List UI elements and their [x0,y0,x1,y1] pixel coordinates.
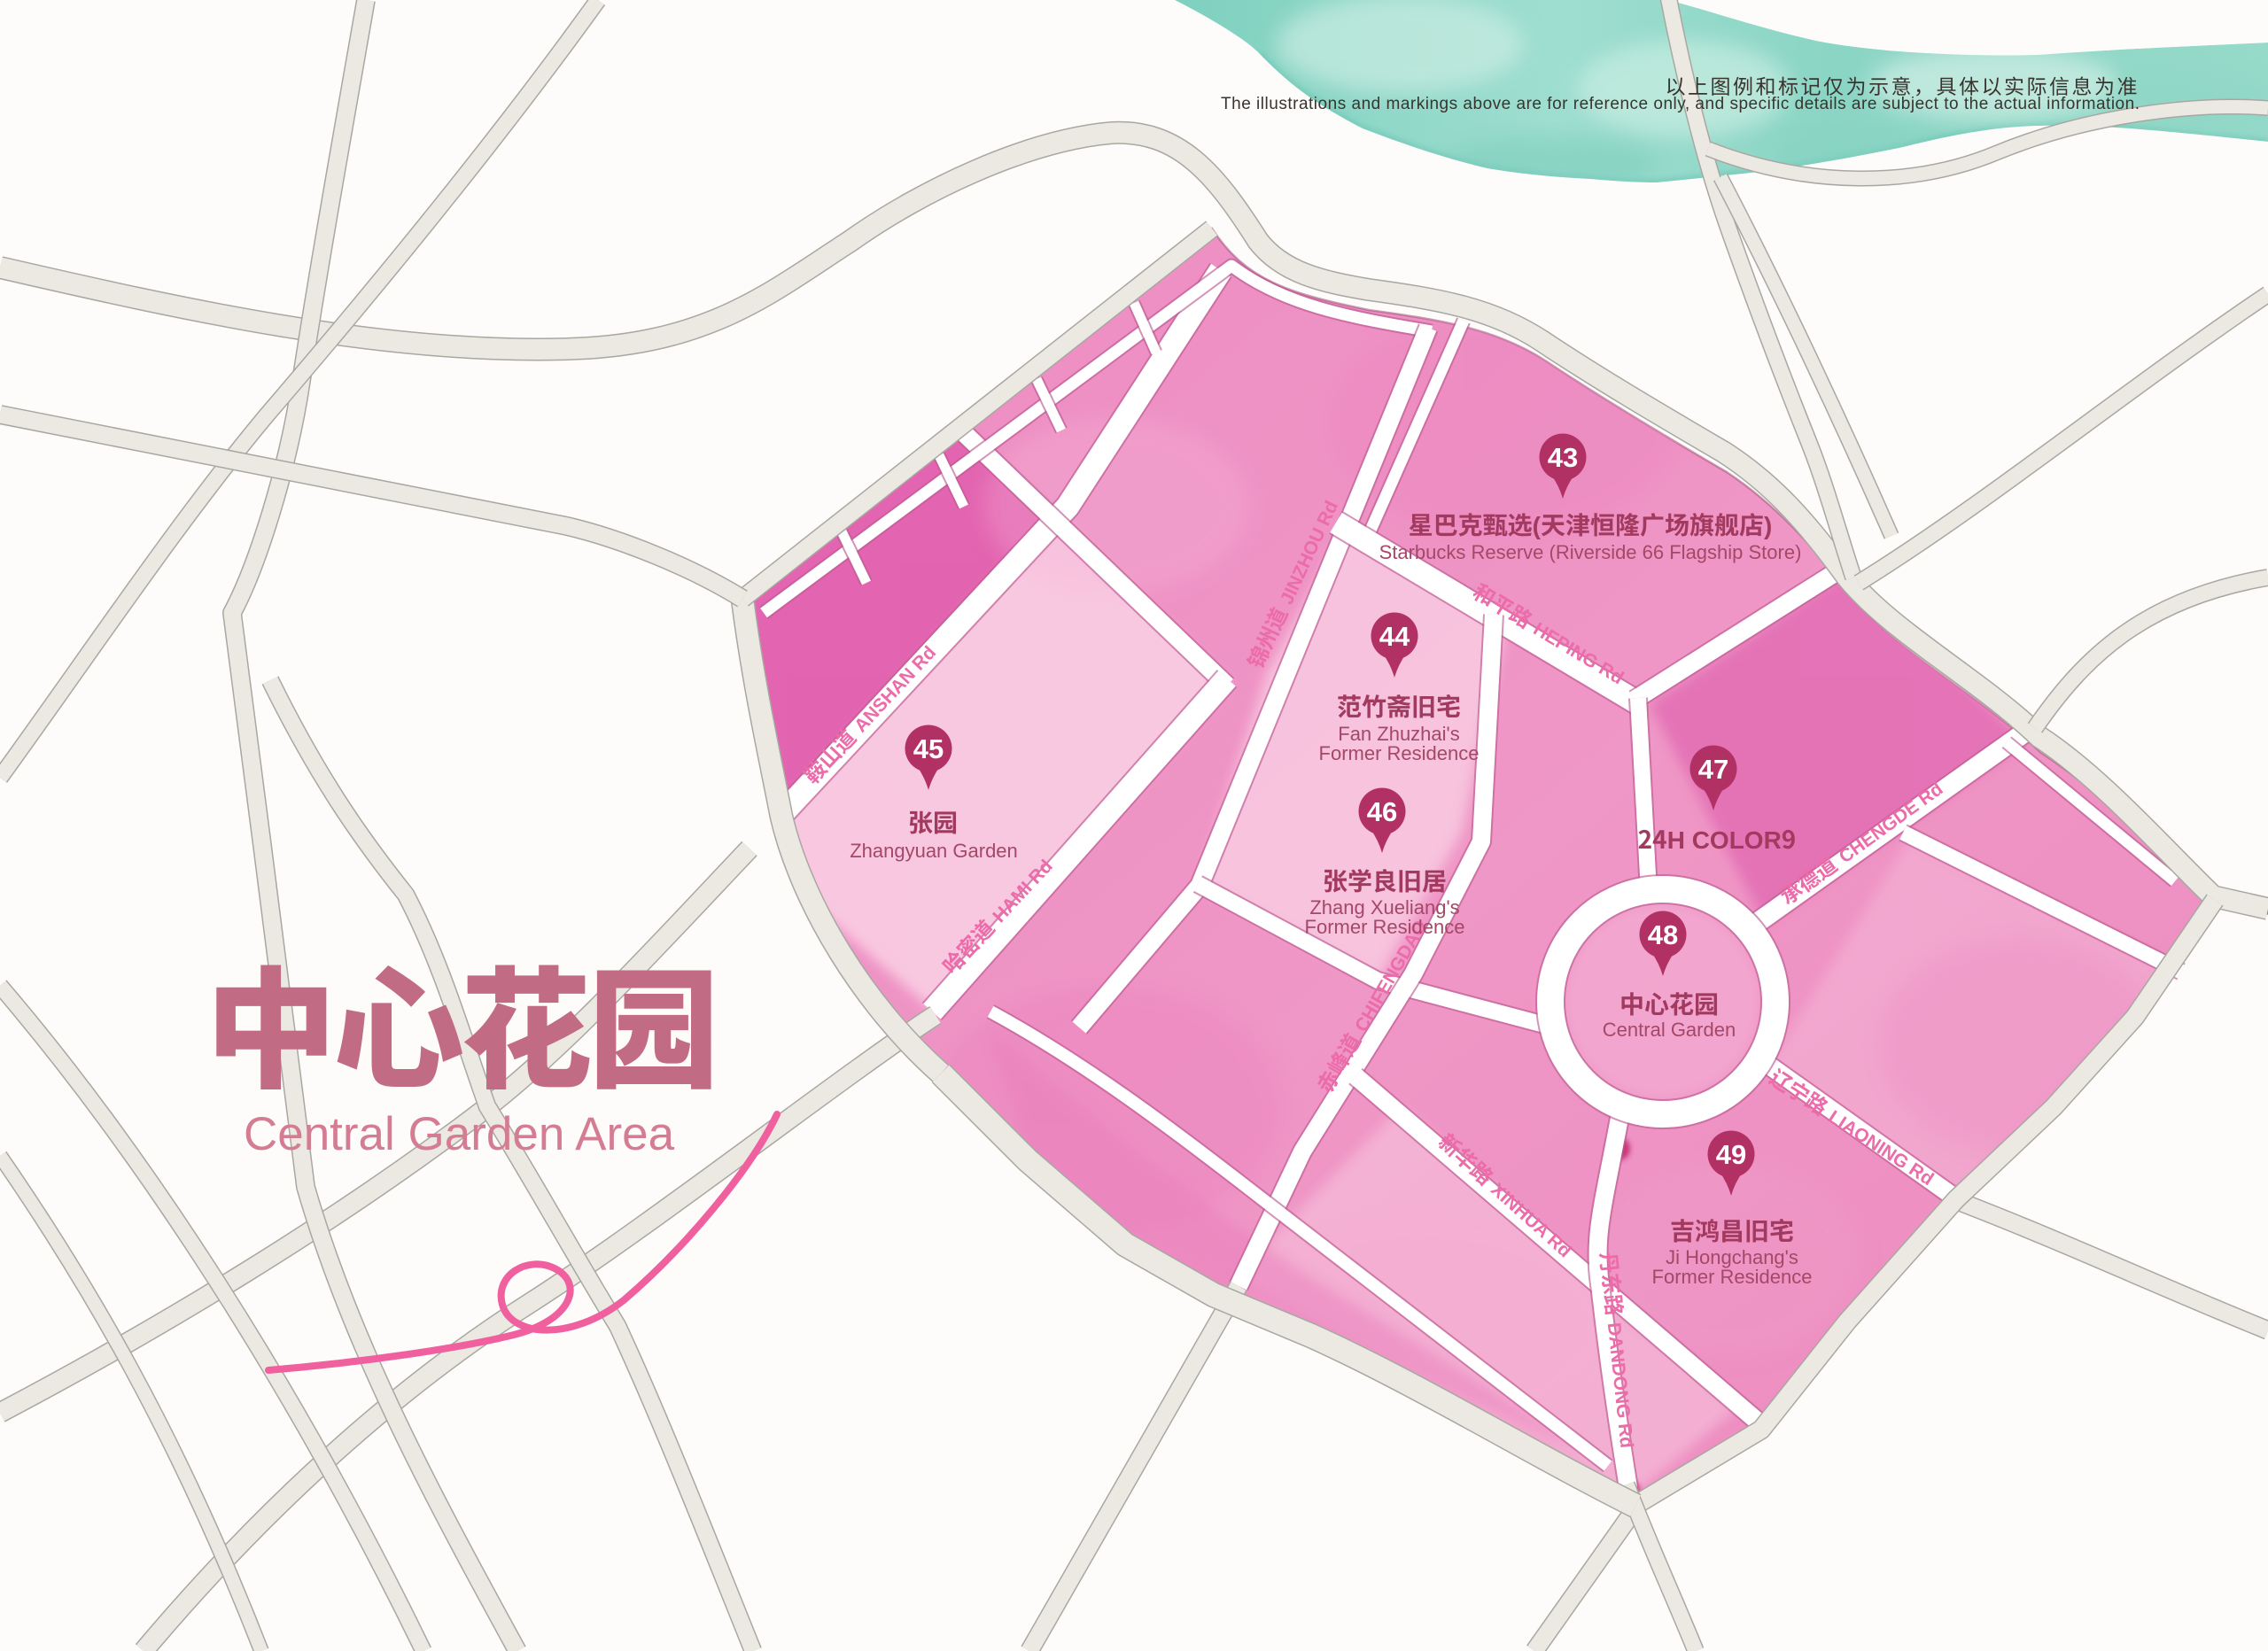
svg-text:吉鸿昌旧宅: 吉鸿昌旧宅 [1670,1213,1794,1248]
svg-text:张园: 张园 [908,804,958,840]
svg-text:45: 45 [913,733,944,764]
svg-text:Zhangyuan Garden: Zhangyuan Garden [850,840,1018,862]
svg-text:Former Residence: Former Residence [1319,742,1480,764]
svg-text:43: 43 [1548,442,1578,473]
svg-text:49: 49 [1716,1139,1746,1170]
svg-text:范竹斋旧宅: 范竹斋旧宅 [1337,688,1461,724]
svg-text:The illustrations and markings: The illustrations and markings above are… [1221,95,2140,113]
svg-text:Central Garden Area: Central Garden Area [244,1108,675,1160]
svg-text:中心花园: 中心花园 [1619,986,1719,1021]
svg-text:Former Residence: Former Residence [1652,1266,1813,1288]
svg-text:Central Garden: Central Garden [1603,1019,1736,1041]
svg-text:中心花园: 中心花园 [206,925,716,1115]
svg-text:Starbucks Reserve (Riverside 6: Starbucks Reserve (Riverside 66 Flagship… [1379,541,1802,563]
svg-text:24H COLOR9: 24H COLOR9 [1638,821,1797,857]
svg-text:张学良旧居: 张学良旧居 [1323,863,1447,898]
svg-text:Former Residence: Former Residence [1305,916,1465,938]
svg-text:47: 47 [1698,754,1728,785]
svg-text:48: 48 [1648,919,1678,950]
svg-text:44: 44 [1379,621,1410,652]
svg-text:46: 46 [1367,796,1397,827]
svg-text:星巴克甄选(天津恒隆广场旗舰店): 星巴克甄选(天津恒隆广场旗舰店) [1409,507,1773,542]
